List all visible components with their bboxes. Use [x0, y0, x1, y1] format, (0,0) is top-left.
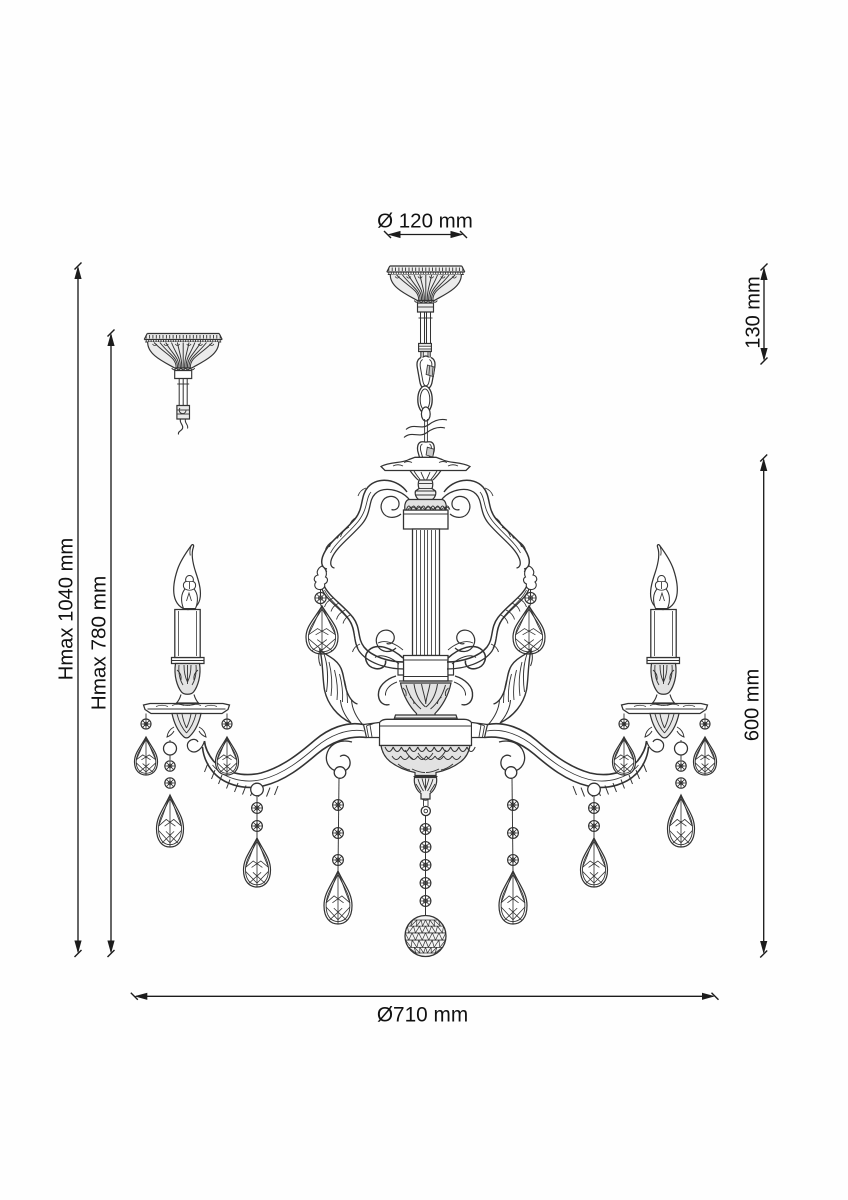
svg-text:130 mm: 130 mm: [743, 276, 765, 348]
svg-text:Hmax 1040 mm: Hmax 1040 mm: [56, 538, 78, 680]
svg-text:Ø710 mm: Ø710 mm: [377, 1004, 468, 1027]
svg-text:600 mm: 600 mm: [742, 669, 764, 741]
svg-text:Hmax 780 mm: Hmax 780 mm: [88, 576, 111, 711]
svg-text:Ø 120 mm: Ø 120 mm: [377, 210, 473, 233]
